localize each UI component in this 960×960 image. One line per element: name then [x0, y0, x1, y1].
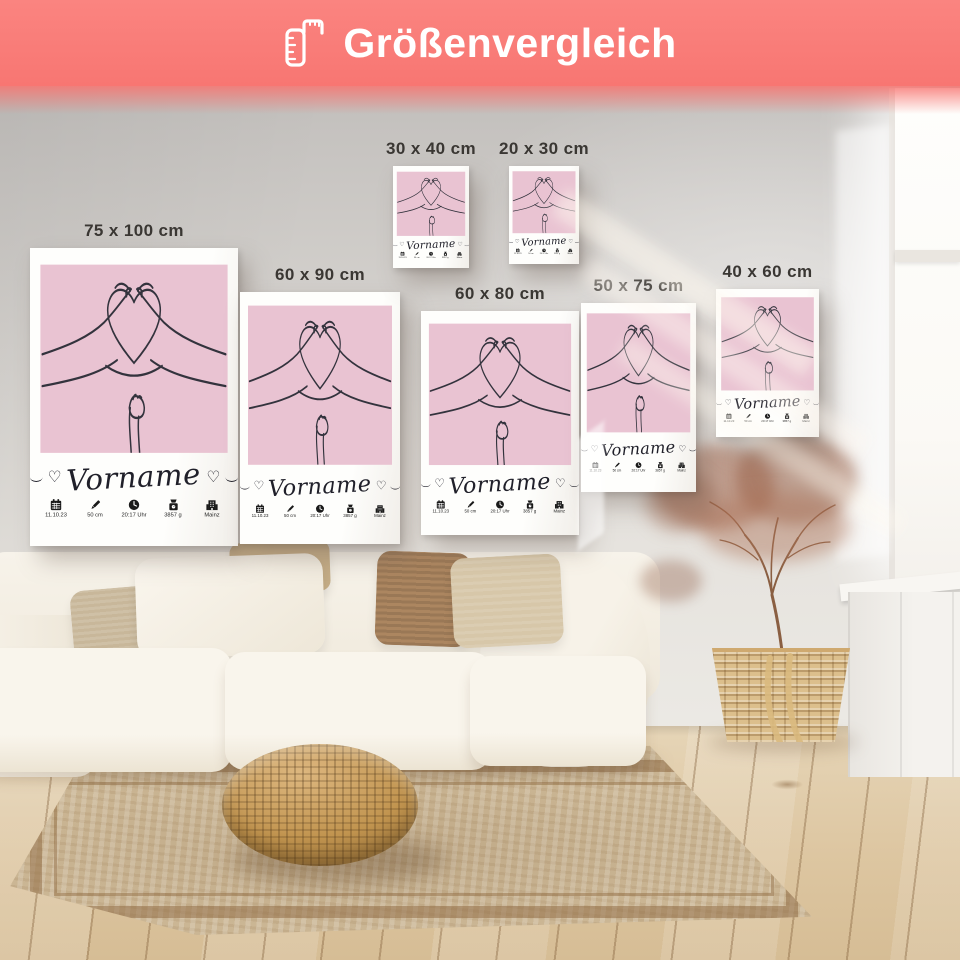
clock-icon: [495, 499, 504, 508]
clock-icon: [635, 462, 642, 469]
pencil-icon: [285, 504, 295, 514]
swash-right: [226, 473, 238, 482]
heart-hands-line-art: [40, 264, 227, 452]
poster-art-area: [40, 264, 227, 452]
poster-design: ♡ Vorname ♡ 11.10.23: [393, 166, 469, 268]
poster-size-label: 30 x 40 cm: [386, 139, 476, 159]
detail-birthdate: 11.10.23: [427, 499, 454, 524]
scale-icon: [443, 252, 448, 257]
pencil-icon: [613, 462, 620, 469]
poster-size-label: 75 x 100 cm: [84, 221, 184, 241]
swash-left: [716, 400, 722, 405]
poster-details-row: 11.10.23 50 cm: [720, 413, 815, 429]
detail-birthdate: 11.10.23: [38, 499, 73, 532]
poster-details-row: 11.10.23 50 cm: [586, 462, 692, 483]
poster-details-row: 11.10.23 50 cm: [427, 499, 572, 524]
detail-birthdate: 11.10.23: [246, 504, 273, 532]
poster-size-label: 60 x 90 cm: [275, 265, 365, 285]
detail-label: 20:17 Uhr: [310, 514, 329, 518]
poster-name-text: Vorname: [268, 470, 373, 502]
detail-label: 11.10.23: [723, 420, 734, 423]
detail-birthplace: Mainz: [672, 462, 692, 483]
swash-left: [581, 446, 588, 451]
detail-label: 3857 g: [164, 513, 182, 519]
detail-label: Mainz: [568, 253, 573, 255]
poster-name-text: Vorname: [734, 393, 801, 413]
detail-birthdate: 11.10.23: [396, 252, 409, 263]
detail-label: 50 cm: [613, 470, 622, 473]
detail-time: 20:17 Uhr: [538, 248, 550, 259]
poster-name-text: Vorname: [448, 468, 551, 499]
poster-frame: ♡ Vorname ♡ 11.10.23: [30, 248, 238, 546]
detail-label: 50 cm: [87, 513, 103, 519]
detail-birthdate: 11.10.23: [720, 413, 738, 429]
clock-icon: [128, 499, 140, 511]
pencil-icon: [89, 499, 101, 511]
detail-length: 50 cm: [525, 248, 537, 259]
poster-art-area: [721, 297, 814, 390]
detail-label: 50 cm: [414, 257, 420, 259]
swash-right: [575, 240, 579, 243]
poster-name-text: Vorname: [66, 457, 202, 498]
scale-icon: [657, 462, 664, 469]
heart-glyph-right: ♡: [555, 478, 566, 490]
swash-left: [30, 473, 42, 482]
detail-label: 50 cm: [464, 510, 476, 514]
detail-birthplace: Mainz: [194, 499, 229, 532]
detail-weight: 3857 g: [516, 499, 543, 524]
detail-length: 50 cm: [739, 413, 757, 429]
page-title: Größenvergleich: [343, 20, 676, 67]
scale-icon: [784, 413, 790, 419]
scale-icon: [167, 499, 179, 511]
detail-time: 20:17 Uhr: [487, 499, 514, 524]
heart-glyph-left: ♡: [434, 478, 445, 490]
scale-icon: [525, 499, 534, 508]
heart-glyph-left: ♡: [725, 399, 732, 407]
poster-60x80cm: 60 x 80 cm: [421, 311, 579, 535]
detail-label: 20:17 Uhr: [540, 253, 548, 255]
detail-label: 3857 g: [442, 257, 448, 259]
detail-label: 20:17 Uhr: [761, 420, 773, 423]
header-banner: Größenvergleich: [0, 0, 960, 86]
detail-birthplace: Mainz: [546, 499, 573, 524]
detail-birthplace: Mainz: [453, 252, 466, 263]
poster-size-label: 50 x 75 cm: [593, 276, 683, 296]
poster-design: ♡ Vorname ♡ 11.10.23: [240, 292, 400, 544]
poster-name-script: ♡ Vorname ♡: [716, 393, 819, 412]
detail-label: 3857 g: [655, 470, 665, 473]
detail-weight: 3857 g: [650, 462, 670, 483]
pencil-icon: [745, 413, 751, 419]
pencil-icon: [414, 252, 419, 257]
clock-icon: [315, 504, 325, 514]
heart-glyph-right: ♡: [803, 399, 810, 407]
detail-label: 50 cm: [528, 253, 533, 255]
swash-right: [464, 243, 469, 246]
detail-label: 50 cm: [284, 514, 296, 518]
detail-birthdate: 11.10.23: [586, 462, 606, 483]
detail-label: 3857 g: [554, 253, 560, 255]
detail-time: 20:17 Uhr: [306, 504, 333, 532]
poster-art-area: [513, 171, 576, 233]
detail-label: 20:17 Uhr: [490, 510, 509, 514]
detail-length: 50 cm: [410, 252, 423, 263]
heart-glyph-left: ♡: [591, 444, 599, 453]
poster-frame: ♡ Vorname ♡ 11.10.23: [240, 292, 400, 544]
poster-art-area: [587, 313, 691, 432]
heart-glyph-left: ♡: [254, 480, 265, 492]
pencil-icon: [466, 499, 475, 508]
heart-hands-line-art: [397, 172, 465, 236]
detail-birthplace: Mainz: [564, 248, 576, 259]
heart-glyph-left: ♡: [399, 242, 404, 248]
detail-label: Mainz: [204, 513, 219, 519]
detail-weight: 3857 g: [155, 499, 190, 532]
swash-left: [240, 482, 250, 489]
heart-hands-line-art: [429, 323, 571, 464]
detail-time: 20:17 Uhr: [629, 462, 649, 483]
detail-length: 50 cm: [77, 499, 112, 532]
detail-length: 50 cm: [276, 504, 303, 532]
poster-name-script: ♡ Vorname ♡: [581, 436, 696, 461]
poster-art-area: [429, 323, 571, 464]
poster-frame: ♡ Vorname ♡ 11.10.23: [581, 303, 696, 492]
hospital-icon: [555, 499, 564, 508]
poster-name-script: ♡ Vorname ♡: [509, 235, 579, 248]
detail-time: 20:17 Uhr: [759, 413, 777, 429]
detail-time: 20:17 Uhr: [116, 499, 151, 532]
detail-label: Mainz: [374, 514, 386, 518]
detail-label: 11.10.23: [252, 514, 269, 518]
heart-hands-line-art: [587, 313, 691, 432]
poster-art-area: [248, 306, 392, 465]
detail-birthplace: Mainz: [797, 413, 815, 429]
calendar-icon: [592, 462, 599, 469]
poster-name-text: Vorname: [521, 235, 567, 249]
poster-wall: 75 x 100 cm: [0, 0, 960, 780]
detail-label: 50 cm: [744, 420, 752, 423]
detail-length: 50 cm: [607, 462, 627, 483]
size-comparison-image: Größenvergleich: [0, 0, 960, 960]
poster-name-script: ♡ Vorname ♡: [393, 238, 469, 251]
poster-20x30cm: 20 x 30 cm: [509, 166, 579, 264]
poster-size-label: 20 x 30 cm: [499, 139, 589, 159]
poster-size-label: 40 x 60 cm: [722, 262, 812, 282]
hospital-icon: [678, 462, 685, 469]
heart-hands-line-art: [248, 306, 392, 465]
detail-label: 20:17 Uhr: [632, 470, 646, 473]
swash-right: [689, 446, 696, 451]
poster-design: ♡ Vorname ♡ 11.10.23: [30, 248, 238, 546]
heart-glyph-right: ♡: [679, 444, 687, 453]
poster-60x90cm: 60 x 90 cm: [240, 292, 400, 544]
heart-hands-line-art: [721, 297, 814, 390]
calendar-icon: [255, 504, 265, 514]
calendar-icon: [726, 413, 732, 419]
detail-label: Mainz: [802, 420, 810, 423]
detail-label: 3857 g: [782, 420, 791, 423]
heart-glyph-right: ♡: [457, 242, 462, 248]
poster-frame: ♡ Vorname ♡ 11.10.23: [716, 289, 819, 437]
swash-right: [570, 480, 579, 487]
hospital-icon: [375, 504, 385, 514]
poster-design: ♡ Vorname ♡ 11.10.23: [421, 311, 579, 535]
heart-glyph-left: ♡: [515, 239, 520, 244]
poster-name-text: Vorname: [406, 237, 456, 252]
detail-length: 50 cm: [457, 499, 484, 524]
poster-design: ♡ Vorname ♡ 11.10.23: [716, 289, 819, 437]
poster-frame: ♡ Vorname ♡ 11.10.23: [509, 166, 579, 264]
heart-glyph-right: ♡: [376, 480, 387, 492]
detail-weight: 3857 g: [439, 252, 452, 263]
detail-label: 11.10.23: [589, 470, 601, 473]
detail-label: 20:17 Uhr: [121, 513, 146, 519]
detail-weight: 3857 g: [778, 413, 796, 429]
poster-30x40cm: 30 x 40 cm: [393, 166, 469, 268]
poster-name-script: ♡ Vorname ♡: [240, 470, 400, 503]
hospital-icon: [457, 252, 462, 257]
detail-weight: 3857 g: [336, 504, 363, 532]
poster-details-row: 11.10.23 50 cm: [246, 504, 393, 532]
poster-details-row: 11.10.23 50 cm: [38, 499, 229, 532]
clock-icon: [764, 413, 770, 419]
poster-name-text: Vorname: [601, 437, 676, 460]
calendar-icon: [400, 252, 405, 257]
swash-left: [393, 243, 398, 246]
swash-right: [813, 400, 819, 405]
poster-frame: ♡ Vorname ♡ 11.10.23: [421, 311, 579, 535]
detail-label: Mainz: [553, 510, 565, 514]
detail-label: 3857 g: [523, 510, 536, 514]
poster-40x60cm: 40 x 60 cm: [716, 289, 819, 437]
hospital-icon: [803, 413, 809, 419]
detail-label: Mainz: [457, 257, 463, 259]
clock-icon: [429, 252, 434, 257]
poster-75x100cm: 75 x 100 cm: [30, 248, 238, 546]
detail-birthplace: Mainz: [366, 504, 393, 532]
poster-design: ♡ Vorname ♡ 11.10.23: [581, 303, 696, 492]
calendar-icon: [50, 499, 62, 511]
swash-right: [390, 482, 400, 489]
poster-details-row: 11.10.23 50 cm: [396, 252, 466, 263]
poster-design: ♡ Vorname ♡ 11.10.23: [509, 166, 579, 264]
poster-name-script: ♡ Vorname ♡: [30, 458, 238, 497]
poster-size-label: 60 x 80 cm: [455, 284, 545, 304]
detail-label: 3857 g: [343, 514, 356, 518]
detail-label: 11.10.23: [45, 513, 67, 519]
heart-glyph-right: ♡: [206, 470, 220, 486]
heart-glyph-right: ♡: [568, 239, 573, 244]
calendar-icon: [436, 499, 445, 508]
poster-50x75cm: 50 x 75 cm: [581, 303, 696, 492]
swash-left: [509, 240, 513, 243]
heart-glyph-left: ♡: [48, 470, 62, 486]
poster-art-area: [397, 172, 465, 236]
swash-left: [421, 480, 430, 487]
poster-details-row: 11.10.23 50 cm: [512, 248, 576, 259]
detail-birthdate: 11.10.23: [512, 248, 524, 259]
detail-label: 11.10.23: [399, 257, 407, 259]
heart-hands-line-art: [513, 171, 576, 233]
detail-weight: 3857 g: [551, 248, 563, 259]
detail-label: 11.10.23: [432, 510, 449, 514]
scale-icon: [345, 504, 355, 514]
poster-name-script: ♡ Vorname ♡: [421, 469, 579, 498]
detail-time: 20:17 Uhr: [425, 252, 438, 263]
poster-frame: ♡ Vorname ♡ 11.10.23: [393, 166, 469, 268]
ruler-icon: [283, 17, 327, 69]
hospital-icon: [206, 499, 218, 511]
detail-label: 11.10.23: [514, 253, 521, 255]
detail-label: Mainz: [677, 470, 685, 473]
detail-label: 20:17 Uhr: [426, 257, 435, 259]
